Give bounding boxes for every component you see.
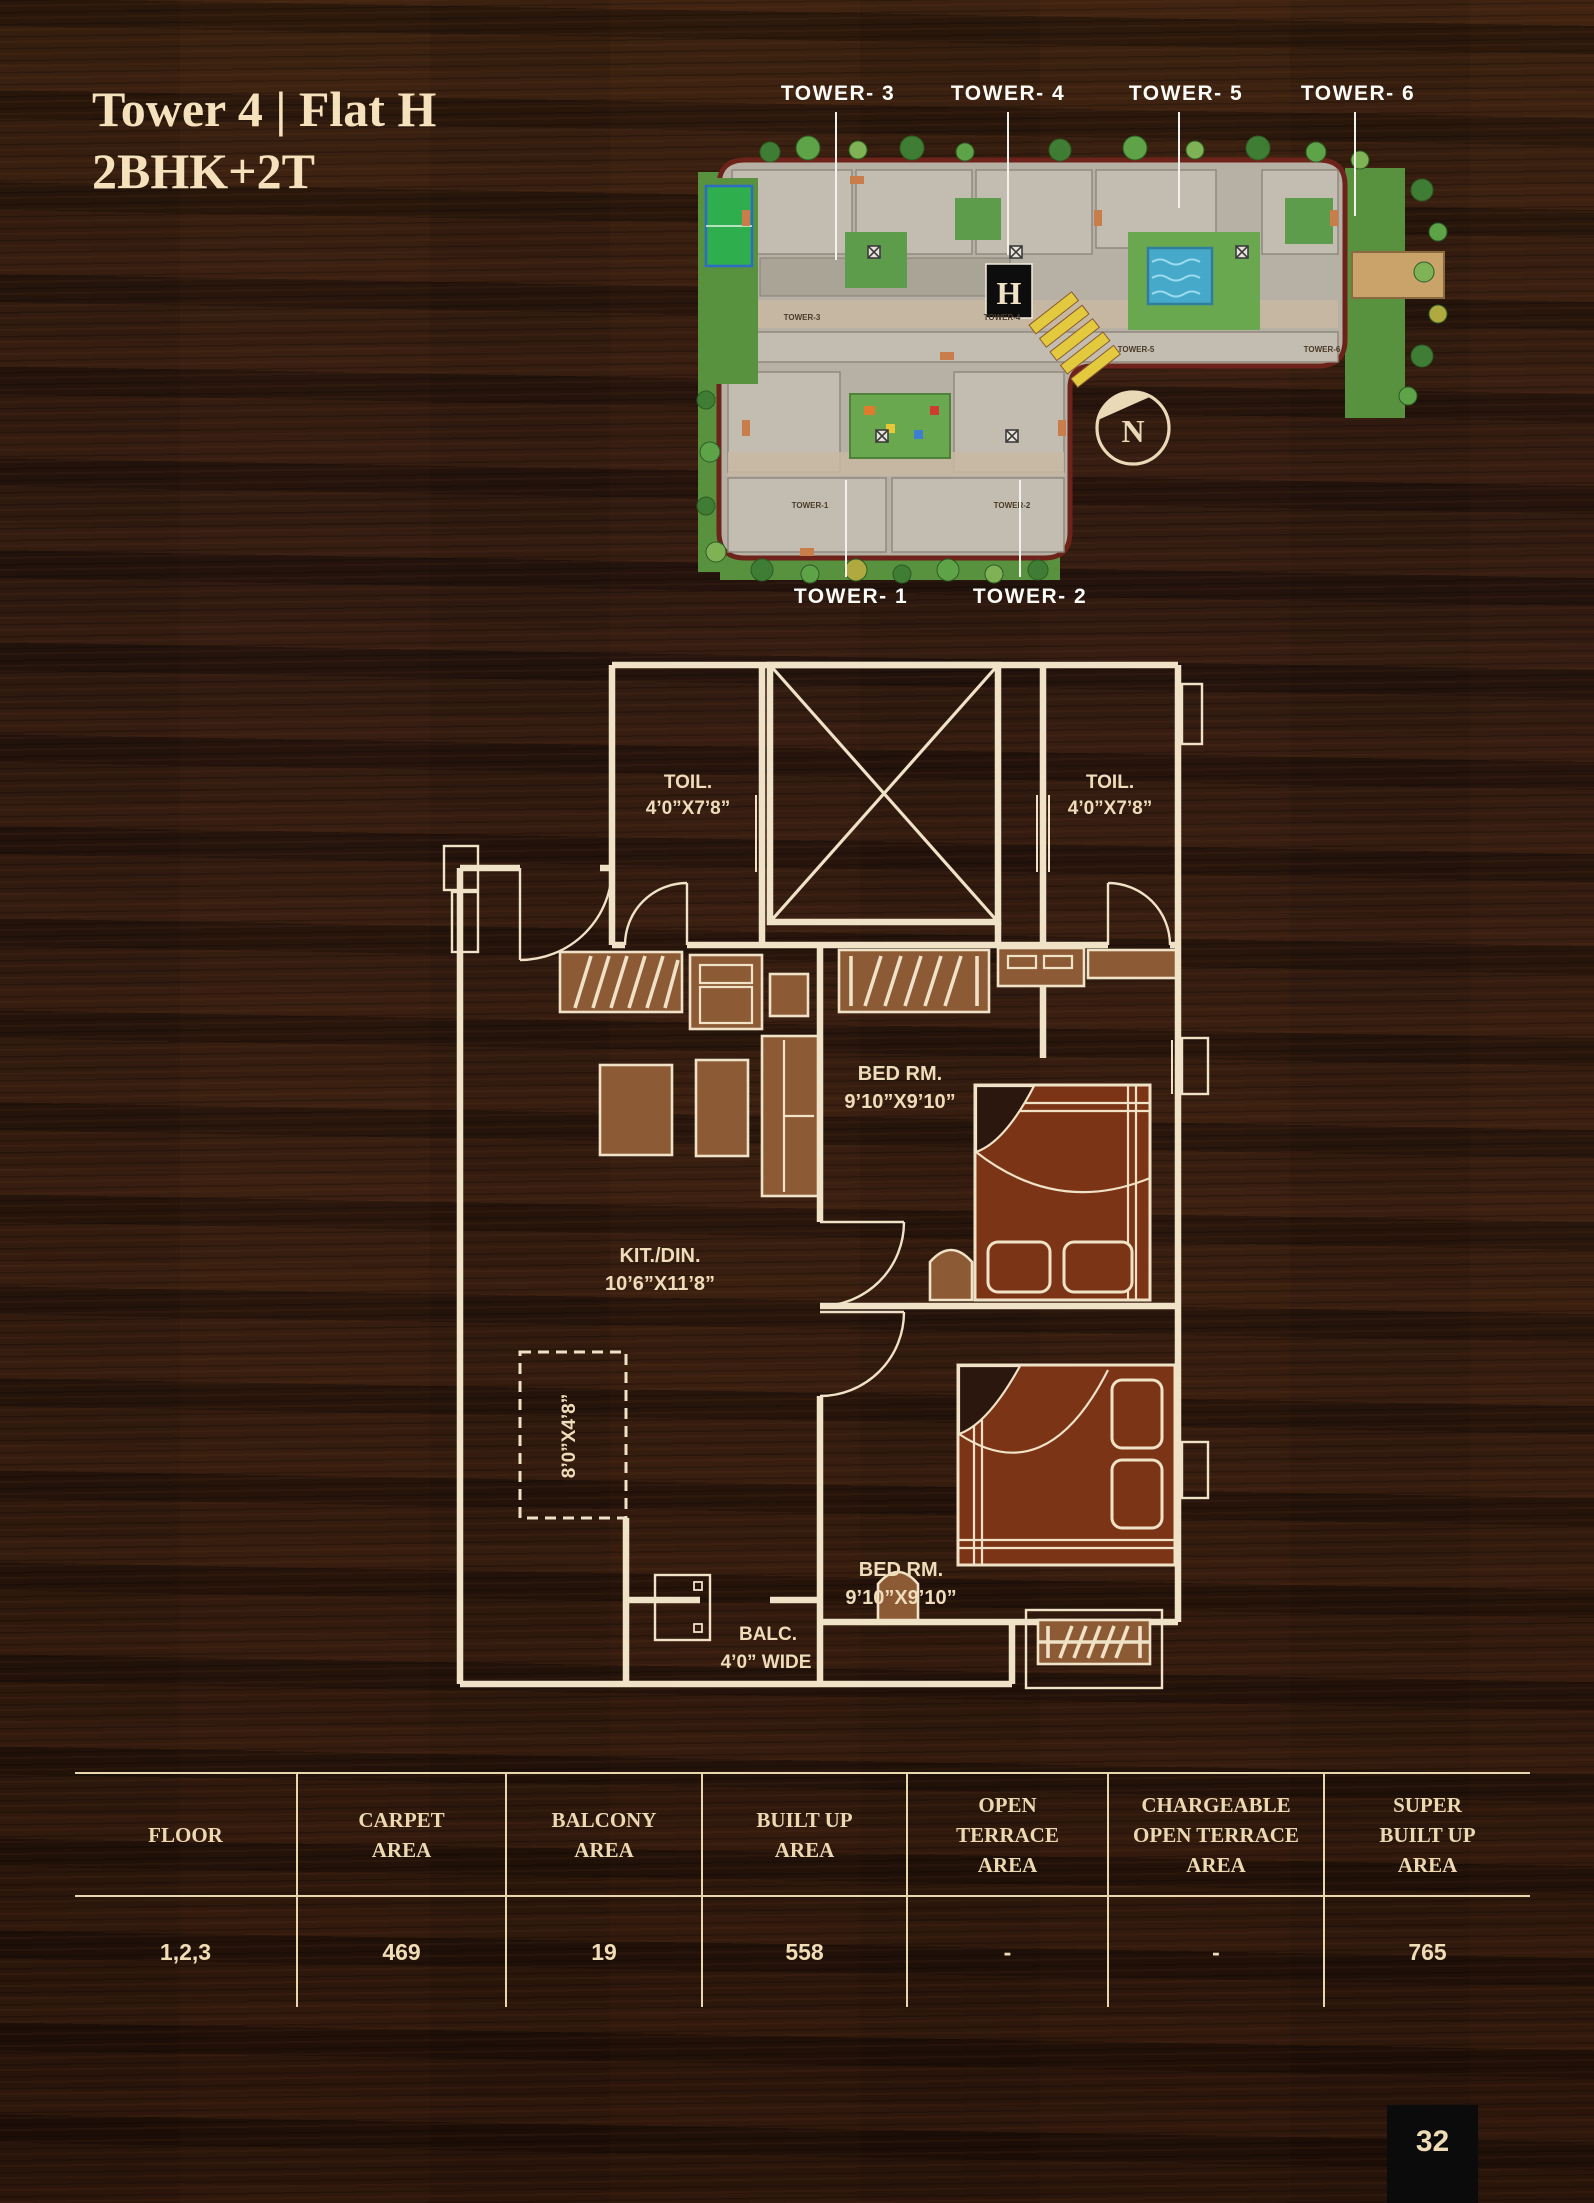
balcony-name: BALC. xyxy=(739,1624,797,1645)
pillow xyxy=(1064,1242,1132,1292)
area-table: FLOOR CARPET AREA BALCONY AREA BUILT UP … xyxy=(75,1772,1530,2007)
page-title-line2: 2BHK+2T xyxy=(92,140,436,202)
page-title: Tower 4 | Flat H 2BHK+2T xyxy=(92,78,436,202)
coffee-table xyxy=(696,1060,748,1156)
tower-3-leader-line xyxy=(835,112,837,260)
building-block xyxy=(732,332,1338,362)
tower-4-leader-line xyxy=(1007,112,1009,255)
header-open-terrace-area: OPEN TERRACE AREA xyxy=(906,1774,1107,1895)
mini-label-tower3: TOWER-3 xyxy=(784,313,821,322)
toilet-2-name: TOIL. xyxy=(1086,772,1134,793)
flat-h-marker: H xyxy=(986,264,1032,318)
toilet-1-dims: 4’0”X7’8” xyxy=(646,798,731,819)
entry-door xyxy=(520,868,612,960)
living-dining-furniture xyxy=(560,952,818,1196)
bedroom-2-door xyxy=(820,1312,904,1396)
bedroom-2-furniture xyxy=(878,1365,1175,1620)
mini-label-tower6: TOWER-6 xyxy=(1304,345,1341,354)
tennis-court xyxy=(700,178,758,384)
floor-plan: TOIL. 4’0”X7’8” TOIL. 4’0”X7’8” BED RM. … xyxy=(440,650,1230,1725)
value-open-terrace-area: - xyxy=(906,1897,1107,2007)
value-super-built-up-area: 765 xyxy=(1323,1897,1530,2007)
mini-label-tower2: TOWER-2 xyxy=(994,501,1031,510)
header-balcony-area: BALCONY AREA xyxy=(505,1774,701,1895)
kitchen-dining-dims: 10’6”X11’8” xyxy=(605,1273,715,1295)
tower-2-leader-line xyxy=(1019,480,1021,577)
tower-5-leader-line xyxy=(1178,112,1180,208)
value-floor: 1,2,3 xyxy=(75,1897,296,2007)
side-table xyxy=(770,974,808,1016)
header-super-built-up-area: SUPER BUILT UP AREA xyxy=(1323,1774,1530,1895)
pillow xyxy=(1112,1380,1162,1448)
toilet-1-door xyxy=(625,883,687,945)
page-number: 32 xyxy=(1416,2125,1449,2159)
courtyard-green xyxy=(1285,198,1333,244)
toilet-2-dims: 4’0”X7’8” xyxy=(1068,798,1153,819)
building-block xyxy=(728,478,886,552)
header-carpet-area: CARPET AREA xyxy=(296,1774,505,1895)
tower-1-label: TOWER- 1 xyxy=(766,585,936,609)
value-chargeable-open-terrace-area: - xyxy=(1107,1897,1323,2007)
mini-label-tower5: TOWER-5 xyxy=(1118,345,1155,354)
area-table-header-row: FLOOR CARPET AREA BALCONY AREA BUILT UP … xyxy=(75,1774,1530,1897)
header-floor: FLOOR xyxy=(75,1774,296,1895)
courtyard-green xyxy=(845,232,907,288)
bedroom-1-door xyxy=(820,1222,904,1306)
bedside-console xyxy=(1088,950,1176,978)
tower-1-leader-line xyxy=(845,480,847,577)
nightstand xyxy=(930,1250,972,1300)
compass-n-label: N xyxy=(1121,413,1144,449)
courtyard-green xyxy=(955,198,1001,240)
value-balcony-area: 19 xyxy=(505,1897,701,2007)
mini-label-tower1: TOWER-1 xyxy=(792,501,829,510)
mini-label-tower4: TOWER-4 xyxy=(984,313,1021,322)
tower-2-label: TOWER- 2 xyxy=(945,585,1115,609)
header-chargeable-open-terrace-area: CHARGEABLE OPEN TERRACE AREA xyxy=(1107,1774,1323,1895)
pillow xyxy=(1112,1460,1162,1528)
tower-6-label: TOWER- 6 xyxy=(1273,82,1443,106)
tower-5-label: TOWER- 5 xyxy=(1101,82,1271,106)
bedroom-1-name: BED RM. xyxy=(858,1063,942,1085)
compass: N xyxy=(1097,391,1169,464)
site-plan: H TOWER-3 TOWER-4 TOWER-5 TOWER-6 TOWER-… xyxy=(690,125,1460,605)
tower-6-leader-line xyxy=(1354,112,1356,216)
bedroom-2-name: BED RM. xyxy=(859,1559,943,1581)
tower-3-label: TOWER- 3 xyxy=(753,82,923,106)
page-title-line1: Tower 4 | Flat H xyxy=(92,78,436,140)
toilet-2-door xyxy=(1108,883,1170,945)
area-table-value-row: 1,2,3 469 19 558 - - 765 xyxy=(75,1897,1530,2007)
stair-shaft-cross xyxy=(770,665,998,922)
building-block xyxy=(892,478,1064,552)
kitchen-dining-name: KIT./DIN. xyxy=(619,1245,700,1267)
bedroom-2-dims: 9’10”X9’10” xyxy=(845,1587,956,1609)
value-built-up-area: 558 xyxy=(701,1897,906,2007)
dining-table xyxy=(600,1065,672,1155)
flat-h-letter: H xyxy=(997,275,1022,311)
value-carpet-area: 469 xyxy=(296,1897,505,2007)
side-balcony-dims: 8’0”X4’8” xyxy=(559,1394,580,1479)
toilet-1-name: TOIL. xyxy=(664,772,712,793)
balcony-dims: 4’0” WIDE xyxy=(721,1652,812,1673)
header-built-up-area: BUILT UP AREA xyxy=(701,1774,906,1895)
page-number-box: 32 xyxy=(1387,2105,1478,2203)
bedroom-1-furniture xyxy=(839,948,1176,1300)
brochure-page: Tower 4 | Flat H 2BHK+2T xyxy=(0,0,1594,2203)
bedroom-1-dims: 9’10”X9’10” xyxy=(844,1091,955,1113)
pillow xyxy=(988,1242,1050,1292)
tower-4-label: TOWER- 4 xyxy=(923,82,1093,106)
playground xyxy=(850,394,950,458)
swimming-pool xyxy=(1148,248,1212,304)
